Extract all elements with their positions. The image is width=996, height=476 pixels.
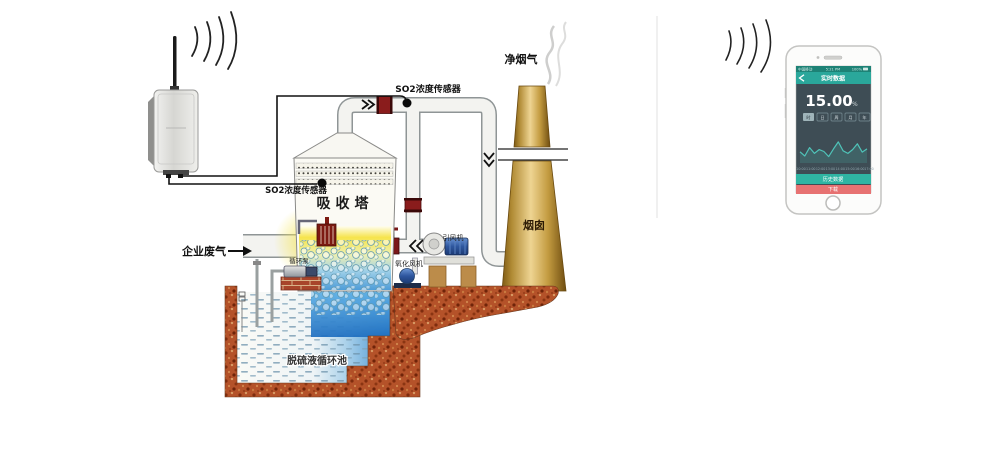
label-absorber-tower: 吸收塔 — [317, 195, 374, 212]
danger-button-label: 下载 — [828, 186, 838, 193]
fan-pedestal — [461, 266, 476, 287]
camera-icon — [817, 56, 820, 59]
x-tick: 12:00 — [816, 167, 826, 171]
x-tick: 17:00 — [864, 167, 874, 171]
battery-icon — [863, 68, 868, 71]
x-tick: 10:00 — [796, 167, 806, 171]
speaker-icon — [824, 56, 842, 59]
x-tick: 14:00 — [835, 167, 845, 171]
phone-wifi-icon — [726, 20, 770, 72]
label-chimney: 烟囱 — [523, 218, 545, 232]
demister-band — [296, 163, 393, 169]
label-clean-flue-gas: 净烟气 — [505, 52, 538, 66]
x-tick: 15:00 — [845, 167, 855, 171]
smartphone: 中国移动 5:21 PM 100% 实时数据 15.00 % 时 日 周 月 年… — [785, 46, 881, 214]
pump-brick-base — [281, 277, 321, 290]
x-tick: 13:00 — [826, 167, 836, 171]
reading-unit: % — [852, 101, 858, 108]
circulation-pump — [281, 266, 321, 290]
fan-base — [424, 257, 474, 264]
status-battery: 100% — [852, 68, 863, 72]
phone-screen — [796, 66, 871, 193]
fan-pedestal — [429, 266, 446, 287]
wireless-transmitter — [148, 12, 236, 178]
label-induced-draft-fan: 引风机 — [443, 233, 464, 242]
smoke-wisp — [556, 22, 566, 86]
ground-mound — [393, 286, 558, 339]
tower-hood — [294, 133, 396, 158]
label-so2-sensor-left: SO2浓度传感器 — [265, 185, 327, 196]
valve-top-pipe — [377, 97, 392, 114]
primary-button-label: 历史数据 — [823, 175, 844, 183]
x-tick: 16:00 — [855, 167, 865, 171]
pump-body — [284, 266, 306, 277]
bubble-column-bubbles — [311, 291, 390, 315]
x-tick: 11:00 — [806, 167, 816, 171]
reading-value: 15.00 — [805, 92, 852, 110]
label-circulation-pump: 循环泵 — [289, 256, 309, 265]
antenna — [173, 36, 177, 90]
transmitter-body — [154, 90, 198, 172]
chart-x-labels: 10:00 11:00 12:00 13:00 14:00 15:00 16:0… — [796, 167, 874, 171]
transmitter-wifi-icon — [192, 12, 236, 69]
label-oxidation-fan: 氧化风机 — [395, 259, 423, 268]
home-button[interactable] — [826, 196, 840, 210]
oxidation-fan-scroll — [400, 269, 415, 284]
demister-band — [296, 171, 393, 177]
so2-sensor-dot-pipe — [403, 99, 412, 108]
so2-monitoring-schematic: 中国移动 5:21 PM 100% 实时数据 15.00 % 时 日 周 月 年… — [0, 0, 996, 476]
range-label: 年 — [862, 114, 866, 121]
smoke — [547, 26, 554, 84]
nav-title: 实时数据 — [821, 74, 845, 82]
label-enterprise-waste-gas: 企业废气 — [181, 244, 226, 258]
label-so2-sensor-top: SO2浓度传感器 — [395, 83, 461, 95]
status-time: 5:21 PM — [826, 68, 840, 72]
status-carrier: 中国移动 — [798, 67, 813, 72]
label-desulfurization-pool: 脱硫液循环池 — [287, 354, 347, 367]
pump-motor — [306, 267, 317, 276]
